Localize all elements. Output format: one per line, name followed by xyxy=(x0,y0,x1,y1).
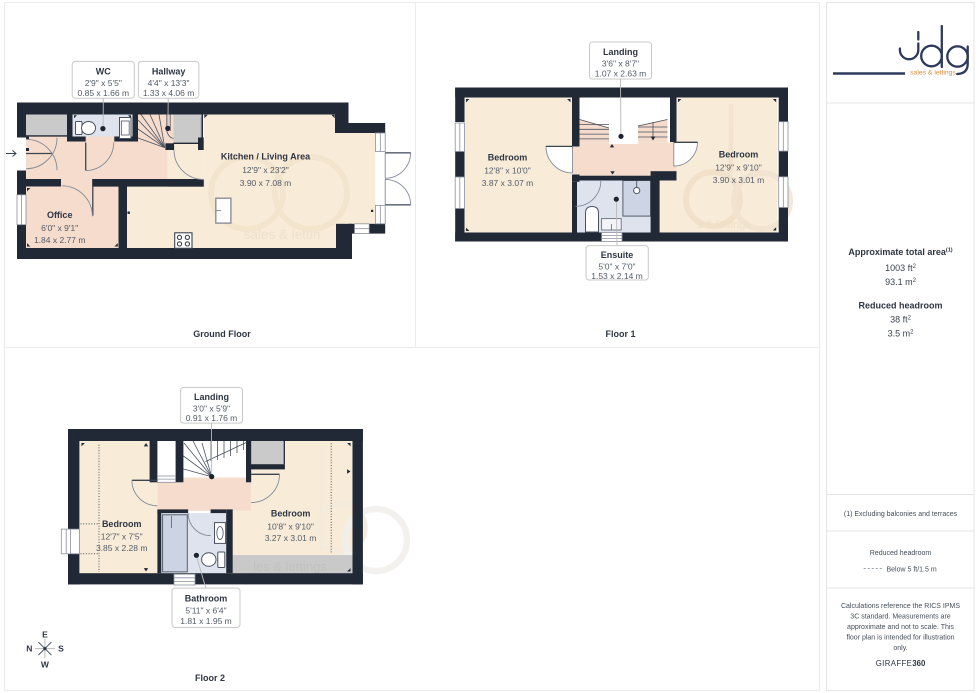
svg-text:Ground Floor: Ground Floor xyxy=(193,329,251,339)
svg-text:N: N xyxy=(26,644,32,654)
svg-text:12'9" x 9'10": 12'9" x 9'10" xyxy=(715,163,762,173)
svg-text:1.81 x 1.95 m: 1.81 x 1.95 m xyxy=(180,616,232,626)
svg-text:1.07 x 2.63 m: 1.07 x 2.63 m xyxy=(595,68,647,78)
svg-text:Calculations reference the RIC: Calculations reference the RICS IPMS xyxy=(841,603,960,610)
svg-text:sales & lettin: sales & lettin xyxy=(244,227,321,242)
svg-text:1.33 x 4.06 m: 1.33 x 4.06 m xyxy=(143,88,195,98)
svg-text:1.84 x 2.77 m: 1.84 x 2.77 m xyxy=(34,235,86,245)
svg-text:approximate and not to scale.: approximate and not to scale. This xyxy=(847,624,954,631)
svg-text:0.85 x 1.66 m: 0.85 x 1.66 m xyxy=(78,88,130,98)
svg-text:3.90 x 3.01 m: 3.90 x 3.01 m xyxy=(713,175,765,185)
svg-text:Hallway: Hallway xyxy=(152,67,186,77)
svg-text:Bedroom: Bedroom xyxy=(102,519,142,529)
svg-text:WC: WC xyxy=(96,67,111,77)
svg-text:12'8" x 10'0": 12'8" x 10'0" xyxy=(484,166,531,176)
svg-text:5'0" x 7'0": 5'0" x 7'0" xyxy=(598,262,635,272)
svg-text:S: S xyxy=(58,644,64,654)
svg-text:Approximate total area(1): Approximate total area(1) xyxy=(848,247,952,257)
svg-text:W: W xyxy=(41,660,50,670)
svg-text:1003 ft2: 1003 ft2 xyxy=(885,263,917,273)
svg-text:Landing: Landing xyxy=(603,47,638,57)
svg-text:Floor 1: Floor 1 xyxy=(605,329,635,339)
svg-text:Kitchen / Living Area: Kitchen / Living Area xyxy=(221,152,311,162)
svg-text:12'7" x 7'5": 12'7" x 7'5" xyxy=(101,532,143,542)
svg-text:0.91 x 1.76 m: 0.91 x 1.76 m xyxy=(186,413,238,423)
svg-text:GIRAFFE360: GIRAFFE360 xyxy=(876,659,926,668)
svg-text:10'8" x 9'10": 10'8" x 9'10" xyxy=(267,522,314,532)
svg-text:3'0" x 5'9": 3'0" x 5'9" xyxy=(193,404,230,414)
svg-text:5'11" x 6'4": 5'11" x 6'4" xyxy=(185,606,226,616)
svg-text:Bedroom: Bedroom xyxy=(271,509,311,519)
svg-text:3.90 x 7.08 m: 3.90 x 7.08 m xyxy=(240,178,292,188)
svg-text:12'9" x 23'2": 12'9" x 23'2" xyxy=(242,165,289,175)
svg-text:3.85 x 2.28 m: 3.85 x 2.28 m xyxy=(96,543,148,553)
svg-text:sales & lettings: sales & lettings xyxy=(910,69,956,76)
svg-text:Ensuite: Ensuite xyxy=(601,250,634,260)
svg-text:Bedroom: Bedroom xyxy=(488,153,528,163)
svg-text:(1) Excluding balconies and te: (1) Excluding balconies and terraces xyxy=(844,511,958,518)
svg-text:3.27 x 3.01 m: 3.27 x 3.01 m xyxy=(265,533,317,543)
svg-text:93.1 m2: 93.1 m2 xyxy=(885,277,917,287)
svg-text:Bathroom: Bathroom xyxy=(185,594,228,604)
svg-text:s & lettings: s & lettings xyxy=(697,219,751,231)
svg-text:Bedroom: Bedroom xyxy=(719,150,759,160)
svg-text:Landing: Landing xyxy=(194,392,229,402)
svg-text:2'9" x 5'5": 2'9" x 5'5" xyxy=(85,78,122,88)
svg-text:4'4" x 13'3": 4'4" x 13'3" xyxy=(148,78,190,88)
svg-text:Reduced headroom: Reduced headroom xyxy=(858,301,942,311)
svg-text:les & lettings: les & lettings xyxy=(253,559,327,574)
svg-text:3'6" x 8'7": 3'6" x 8'7" xyxy=(602,59,639,69)
svg-text:only.: only. xyxy=(893,645,907,652)
svg-text:6'0" x 9'1": 6'0" x 9'1" xyxy=(41,223,78,233)
svg-text:E: E xyxy=(42,630,48,640)
svg-text:3.87 x 3.07 m: 3.87 x 3.07 m xyxy=(482,178,534,188)
svg-text:3C standard. Measurements are: 3C standard. Measurements are xyxy=(850,614,950,621)
svg-text:Below 5 ft/1.5 m: Below 5 ft/1.5 m xyxy=(886,567,936,574)
svg-text:1.53 x 2.14 m: 1.53 x 2.14 m xyxy=(591,271,643,281)
svg-text:Reduced headroom: Reduced headroom xyxy=(870,550,932,557)
svg-text:Office: Office xyxy=(47,210,73,220)
svg-text:floor plan is intended for ill: floor plan is intended for illustration xyxy=(846,635,954,642)
svg-text:Floor 2: Floor 2 xyxy=(195,673,225,683)
